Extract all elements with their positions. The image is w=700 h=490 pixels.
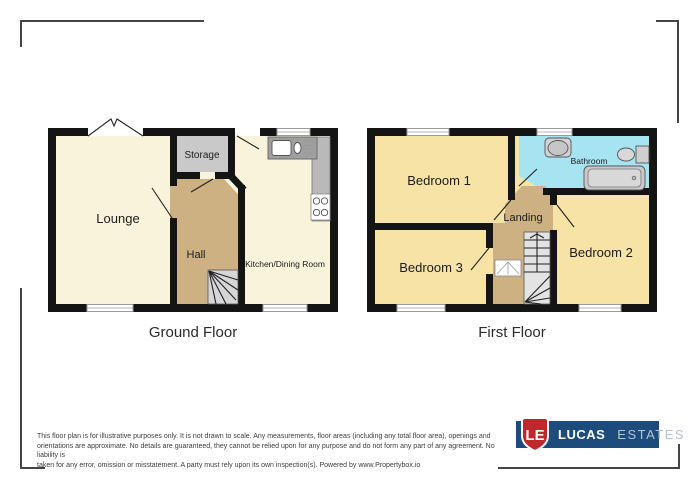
first-floor-plan: Bedroom 1 Bathroom Landing Bedroom 2 Bed… — [367, 114, 657, 312]
disclaimer-text: This floor plan is for illustrative purp… — [37, 432, 513, 470]
basin-icon — [545, 138, 571, 157]
ground-floor-plan: Lounge Storage Hall Kitchen/Dining Room — [48, 114, 338, 312]
bedroom1-label: Bedroom 1 — [407, 173, 471, 188]
kitchen-sink-icon — [268, 137, 317, 159]
bay-window-icon — [88, 119, 143, 136]
bathroom-label: Bathroom — [571, 156, 608, 166]
logo-shield-icon: LE — [518, 416, 552, 453]
bathroom-window-icon — [537, 129, 572, 136]
kitchen-label: Kitchen/Dining Room — [245, 259, 325, 269]
logo-suffix: ESTATES — [617, 427, 685, 442]
hall-label: Hall — [187, 249, 206, 261]
bedroom3-label: Bedroom 3 — [399, 260, 463, 275]
disclaimer-line-1: This floor plan is for illustrative purp… — [37, 432, 513, 442]
disclaimer-line-3: taken for any error, omission or misstat… — [37, 461, 513, 471]
floorplan-sheet: Lounge Storage Hall Kitchen/Dining Room — [0, 0, 700, 490]
bedroom1-window-icon — [407, 129, 449, 136]
landing-label: Landing — [503, 212, 542, 224]
logo-name: LUCAS — [558, 427, 605, 442]
bathtub-icon — [584, 166, 645, 190]
lounge-label: Lounge — [96, 211, 139, 226]
corner-bracket-top-left — [20, 20, 204, 47]
disclaimer-line-2: orientations are approximate. No details… — [37, 442, 513, 461]
bedroom2-window-icon — [579, 305, 621, 312]
kitchen-bottom-window-icon — [263, 305, 307, 312]
bedroom3-window-icon — [397, 305, 445, 312]
first-floor-title: First Floor — [367, 324, 657, 341]
lounge-bottom-window-icon — [87, 305, 133, 312]
first-stairs-icon — [524, 232, 550, 304]
cupboard-icon — [495, 260, 521, 276]
hob-icon — [311, 194, 330, 220]
ground-stairs-icon — [208, 270, 238, 304]
ground-floor-title: Ground Floor — [48, 324, 338, 341]
storage-label: Storage — [184, 150, 219, 161]
logo-initials: LE — [525, 427, 544, 444]
corner-bracket-top-right — [656, 20, 679, 123]
kitchen-top-window-icon — [277, 129, 310, 136]
bedroom2-label: Bedroom 2 — [569, 245, 633, 260]
